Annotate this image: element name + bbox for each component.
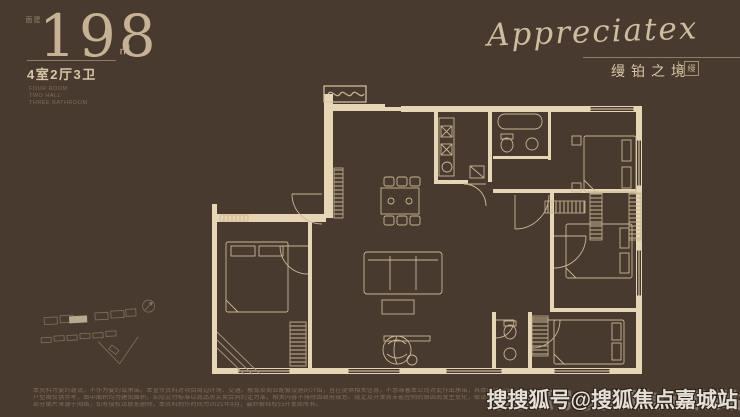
- kitchen-door-arc: [464, 184, 486, 206]
- disclaimer-line: 户型图仅供参考，图中面积均为建筑面积，实际交付标准以商品房买卖合同约定为准。相关…: [33, 395, 521, 402]
- bedroom3-bed: [554, 320, 624, 364]
- closet-hatches: [220, 168, 641, 366]
- area-unit: ㎡: [119, 42, 130, 58]
- master-bed: [572, 136, 636, 192]
- brand-underline: [583, 57, 740, 58]
- sofa: [364, 252, 442, 294]
- kitchen-counter: [439, 118, 484, 178]
- floor-plan: [198, 84, 648, 380]
- sohu-watermark: 搜搜狐号@搜狐焦点嘉城站: [487, 384, 738, 414]
- brand-divider: [678, 61, 679, 76]
- legal-disclaimer: 本资料为要约邀请，不作为要约或承诺。本宣传资料对项目周边环境、交通、教育及商业配…: [33, 388, 521, 409]
- room-layout-text: 4室2厅3卫: [27, 64, 97, 83]
- site-key-plan: [5, 295, 180, 380]
- balcony-louvers: [217, 332, 260, 374]
- subtext-line: FOUR ROOM: [29, 86, 88, 93]
- bedroom2-door-arc: [554, 236, 586, 268]
- keyplan-highlighted-unit: [69, 315, 87, 323]
- room-layout-subtext: FOUR ROOM TWO HALL THREE BATHROOM: [29, 86, 88, 107]
- brand-seal-icon: 缦: [684, 61, 699, 76]
- brand-signature: Appreciatex: [486, 10, 698, 53]
- plant-icon: [383, 336, 417, 365]
- north-arrow-icon: [142, 300, 155, 313]
- keyplan-buildings: [40, 309, 137, 343]
- area-value: 198: [39, 8, 159, 64]
- coffee-table: [382, 300, 414, 314]
- disclaimer-line: 部分图片来源于网络，如有侵权请联系删除。本资料制作时间为2021年9月，最终解释…: [33, 402, 521, 409]
- left-bedroom-bed: [226, 242, 288, 312]
- headline-divider: [27, 60, 116, 61]
- master-door-arc: [515, 195, 549, 229]
- dining-table: [381, 177, 420, 225]
- keyplan-road-outline: [98, 337, 139, 365]
- subtext-line: TWO HALL: [29, 93, 88, 100]
- disclaimer-line: 本资料为要约邀请，不作为要约或承诺。本宣传资料对项目周边环境、交通、教育及商业配…: [33, 388, 521, 395]
- left-bedroom-door-arc: [280, 246, 308, 274]
- master-bathroom: [498, 114, 542, 152]
- second-bathroom: [504, 321, 516, 360]
- brand-name-cn: 缦铂之境: [611, 61, 691, 81]
- subtext-line: THREE BATHROOM: [29, 100, 88, 107]
